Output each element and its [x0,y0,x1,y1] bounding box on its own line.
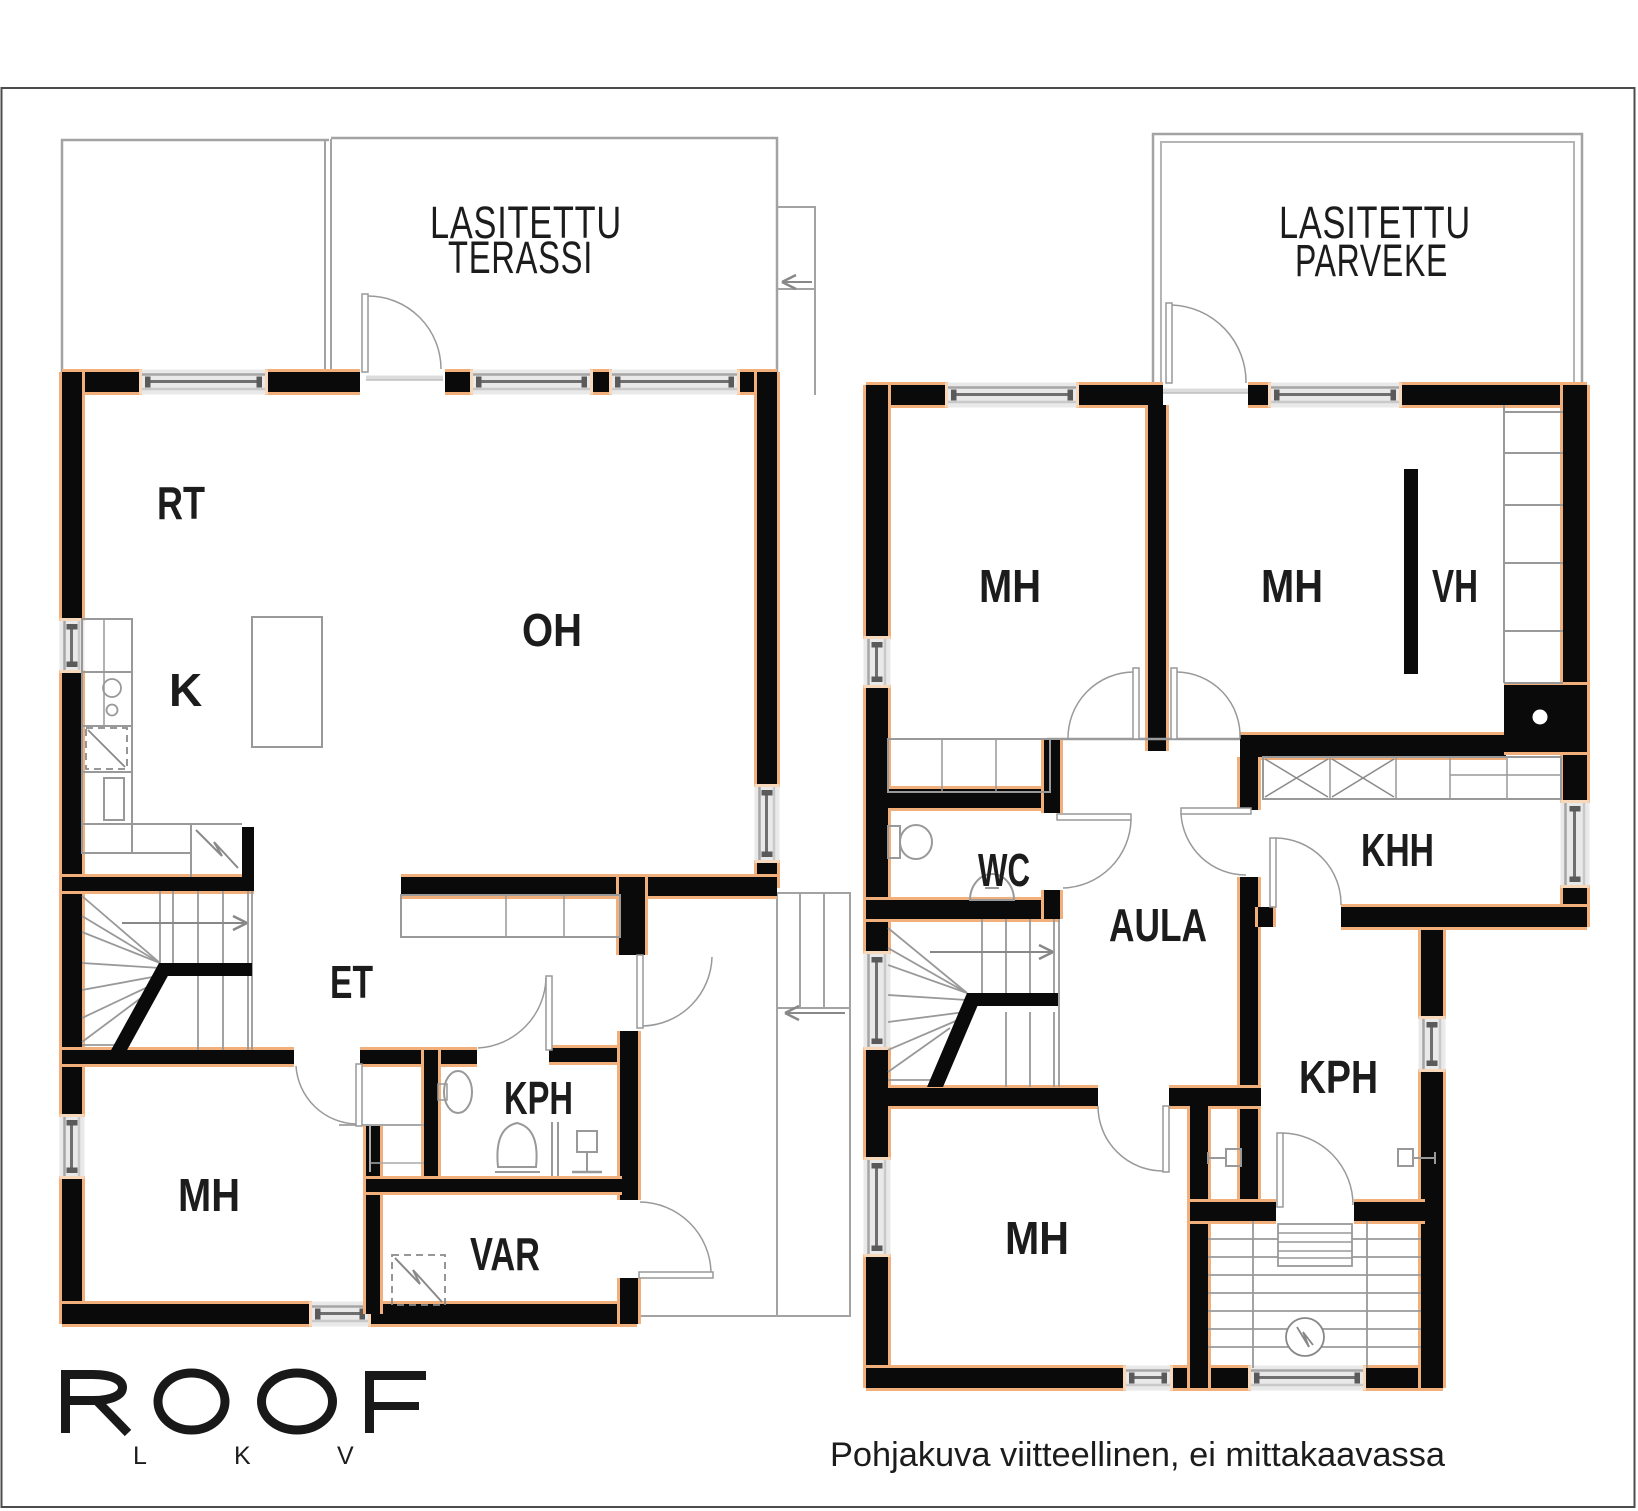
svg-text:AULA: AULA [1109,899,1207,951]
svg-text:MH: MH [178,1169,240,1221]
svg-text:OH: OH [522,604,582,656]
svg-text:VH: VH [1432,560,1478,612]
svg-text:KHH: KHH [1361,824,1434,876]
svg-text:TERASSI: TERASSI [448,232,593,283]
svg-text:VAR: VAR [470,1228,540,1280]
svg-text:MH: MH [1005,1212,1069,1264]
svg-text:KPH: KPH [1299,1051,1378,1103]
svg-text:PARVEKE: PARVEKE [1295,235,1448,286]
svg-text:K: K [169,664,202,716]
svg-text:ET: ET [330,956,373,1008]
svg-text:WC: WC [978,844,1030,896]
svg-text:V: V [337,1442,354,1470]
svg-text:MH: MH [1261,560,1323,612]
svg-text:MH: MH [979,560,1041,612]
svg-text:K: K [234,1442,251,1470]
svg-text:L: L [133,1442,147,1470]
svg-text:KPH: KPH [504,1072,573,1124]
svg-text:RT: RT [157,477,205,529]
svg-text:Pohjakuva viitteellinen, ei mi: Pohjakuva viitteellinen, ei mittakaavass… [830,1436,1445,1474]
